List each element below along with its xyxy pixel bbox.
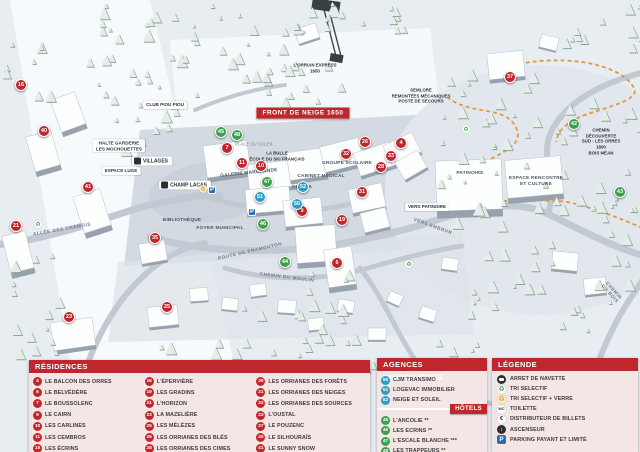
residence-label: LES CEMBROS <box>45 435 86 441</box>
residence-number-badge: 11 <box>33 433 42 442</box>
map-marker-21[interactable]: 21 <box>10 220 22 232</box>
hotel-label: LES ECRINS ** <box>393 428 432 434</box>
agency-label: NEIGE ET SOLEIL <box>393 397 441 403</box>
residence-item: 7LE BOUSSOLENC <box>33 398 145 409</box>
residences-panel-title: RÉSIDENCES <box>29 360 370 373</box>
hotel-number-badge: 47 <box>381 437 390 446</box>
legend-label: ARRET DE NAVETTE <box>510 376 565 382</box>
residence-label: LE BELVÉDÈRE <box>45 390 87 396</box>
map-marker-48[interactable]: 48 <box>231 129 243 141</box>
residence-label: L'ÉPERVIÈRE <box>157 379 193 385</box>
legend-panel: LÉGENDE ARRET DE NAVETTE♻TRI SELECTIF♻TR… <box>492 358 638 452</box>
residence-label: LES ORRIANES DES NEIGES <box>268 390 345 396</box>
residence-label: LE POUZENC <box>268 423 304 429</box>
map-marker-10[interactable]: 10 <box>255 160 267 172</box>
residence-number-badge: 4 <box>33 377 42 386</box>
legend-label: PARKING PAYANT ET LIMITÉ <box>510 437 587 443</box>
hotel-label: LES TRAPPEURS ** <box>393 448 446 452</box>
hotel-label: L'ANCOLIE ** <box>393 418 429 424</box>
residence-item: 19LES GRADINS <box>145 387 257 398</box>
map-marker-37[interactable]: 37 <box>504 71 516 83</box>
residence-number-badge: 21 <box>145 399 154 408</box>
residence-number-badge: 30 <box>256 377 265 386</box>
legend-item: WCTOILETTE <box>497 404 635 414</box>
agencies-panel-title: AGENCES IMMOBILIÈRES <box>377 358 487 371</box>
map-marker-25[interactable]: 25 <box>161 301 173 313</box>
legend-item: €DISTRIBUTEUR DE BILLETS <box>497 414 635 424</box>
residence-item: 21L'HORIZON <box>145 398 257 409</box>
residence-label: LES ÉCRINS <box>45 446 78 452</box>
legend-label: ASCENSEUR <box>510 427 545 433</box>
map-marker-11[interactable]: 11 <box>236 157 248 169</box>
legend-item: ARRET DE NAVETTE <box>497 374 635 384</box>
residence-number-badge: 19 <box>145 388 154 397</box>
map-marker-50[interactable]: 50 <box>291 198 303 210</box>
residence-item: 31LES ORRIANES DES NEIGES <box>256 387 368 398</box>
map-marker-52[interactable]: 52 <box>297 181 309 193</box>
recycle-yellow-icon: ♻ <box>497 395 506 404</box>
residences-column-3: 30LES ORRIANES DES FORÊTS31LES ORRIANES … <box>256 376 368 452</box>
map-marker-42[interactable]: 42 <box>568 118 580 130</box>
legend-item: ♻TRI SELECTIF + VERRE <box>497 394 635 404</box>
residence-item: 40LE SILHOURAÏS <box>256 432 368 443</box>
residence-number-badge: 41 <box>256 444 265 452</box>
recycle-icon: ♻ <box>462 125 470 133</box>
hotel-number-badge: 48 <box>381 447 390 452</box>
agencies-panel: AGENCES IMMOBILIÈRES 50CJM TRANSIMO51LOG… <box>377 358 487 452</box>
map-marker-31[interactable]: 31 <box>356 186 368 198</box>
residence-item: 15LES ÉCRINS <box>33 443 145 452</box>
residence-item: 16L'ÉPERVIÈRE <box>145 376 257 387</box>
euro-icon: € <box>497 415 506 424</box>
residence-label: LES ORRIANES DES SOURCES <box>268 401 352 407</box>
agencies-list: 50CJM TRANSIMO51LOGEVAC IMMOBILIER52NEIG… <box>377 371 487 406</box>
legend-label: TOILETTE <box>510 406 537 412</box>
legend-item: PPARKING PAYANT ET LIMITÉ <box>497 435 635 445</box>
residence-item: 26LES ORRIANES DES BLÉS <box>145 432 257 443</box>
residence-label: LES MÉLÈZES <box>157 423 196 429</box>
bus-icon <box>497 375 506 384</box>
hotels-divider: HÔTELS <box>377 408 487 410</box>
residence-label: LES ORRIANES DES CIMES <box>157 446 231 452</box>
map-marker-19[interactable]: 19 <box>336 214 348 226</box>
residence-number-badge: 31 <box>256 388 265 397</box>
hotel-label: L'ESCALE BLANCHE *** <box>393 438 457 444</box>
recycle-green-icon: ♻ <box>497 385 506 394</box>
residence-number-badge: 26 <box>145 433 154 442</box>
residence-number-badge: 23 <box>145 411 154 420</box>
hotels-panel-title: HÔTELS <box>450 404 487 414</box>
residence-label: L'HORIZON <box>157 401 187 407</box>
residence-label: LE SILHOURAÏS <box>268 435 311 441</box>
hotels-list: 45L'ANCOLIE **46LES ECRINS **47L'ESCALE … <box>377 410 487 452</box>
map-marker-41[interactable]: 41 <box>82 181 94 193</box>
resort-map-page: FRONT DE NEIGE 1650L'ORRIAN EXPRESS 1650… <box>0 0 640 452</box>
residence-label: L'OUSTAL <box>268 412 295 418</box>
residence-item: 10LES CARLINES <box>33 421 145 432</box>
residence-item: 37LE POUZENC <box>256 421 368 432</box>
legend-list: ARRET DE NAVETTE♻TRI SELECTIF♻TRI SELECT… <box>492 371 638 445</box>
residence-number-badge: 16 <box>145 377 154 386</box>
map-marker-32[interactable]: 32 <box>340 148 352 160</box>
residence-label: LES GRADINS <box>157 390 195 396</box>
legend-item: ♻TRI SELECTIF <box>497 384 635 394</box>
residence-item: 33L'OUSTAL <box>256 410 368 421</box>
map-marker-51[interactable]: 51 <box>254 191 266 203</box>
residence-number-badge: 40 <box>256 433 265 442</box>
agency-number-badge: 51 <box>381 386 390 395</box>
elevator-icon: ↕ <box>497 425 506 434</box>
map-marker-26[interactable]: 26 <box>359 136 371 148</box>
map-marker-4[interactable]: 4 <box>395 137 407 149</box>
residence-item: 11LES CEMBROS <box>33 432 145 443</box>
hotel-item: 47L'ESCALE BLANCHE *** <box>381 436 484 446</box>
map-marker-28[interactable]: 28 <box>375 161 387 173</box>
agency-number-badge: 52 <box>381 396 390 405</box>
residence-number-badge: 32 <box>256 399 265 408</box>
legend-label: TRI SELECTIF <box>510 386 547 392</box>
agency-label: CJM TRANSIMO <box>393 377 436 383</box>
map-marker-6[interactable]: 6 <box>331 257 343 269</box>
residence-item: 23LA MAZELIÈRE <box>145 410 257 421</box>
legend-item: ↕ASCENSEUR <box>497 424 635 434</box>
residence-item: 32LES ORRIANES DES SOURCES <box>256 398 368 409</box>
map-marker-33[interactable]: 33 <box>385 150 397 162</box>
residence-number-badge: 25 <box>145 422 154 431</box>
map-marker-40[interactable]: 40 <box>38 125 50 137</box>
hotel-item: 46LES ECRINS ** <box>381 426 484 436</box>
map-marker-23[interactable]: 23 <box>63 311 75 323</box>
residence-number-badge: 6 <box>33 388 42 397</box>
residence-label: LES ORRIANES DES BLÉS <box>157 435 228 441</box>
residence-label: LES CARLINES <box>45 423 86 429</box>
map-marker-7[interactable]: 7 <box>221 142 233 154</box>
residence-number-badge: 9 <box>33 411 42 420</box>
residence-item: 25LES MÉLÈZES <box>145 421 257 432</box>
residence-number-badge: 33 <box>256 411 265 420</box>
legend-label: DISTRIBUTEUR DE BILLETS <box>510 416 585 422</box>
wc-icon: WC <box>497 405 506 414</box>
residence-number-badge: 37 <box>256 422 265 431</box>
agency-number-badge: 50 <box>381 376 390 385</box>
residence-item: 6LE BELVÉDÈRE <box>33 387 145 398</box>
residence-label: LE CAIRN <box>45 412 71 418</box>
residence-number-badge: 28 <box>145 444 154 452</box>
residence-label: LE BOUSSOLENC <box>45 401 93 407</box>
residences-column-1: 4LE BALCON DES ORRES6LE BELVÉDÈRE7LE BOU… <box>33 376 145 452</box>
hotel-number-badge: 46 <box>381 426 390 435</box>
agency-label: LOGEVAC IMMOBILIER <box>393 387 455 393</box>
map-marker-45[interactable]: 45 <box>215 126 227 138</box>
residence-item: 28LES ORRIANES DES CIMES <box>145 443 257 452</box>
map-marker-44[interactable]: 44 <box>279 256 291 268</box>
map-marker-46[interactable]: 46 <box>257 218 269 230</box>
recycle-icon: ♻ <box>405 260 413 268</box>
legend-panel-title: LÉGENDE <box>492 358 638 371</box>
residence-label: LES ORRIANES DES FORÊTS <box>268 379 347 385</box>
residence-number-badge: 7 <box>33 399 42 408</box>
hotel-item: 45L'ANCOLIE ** <box>381 416 484 426</box>
map-marker-47[interactable]: 47 <box>261 176 273 188</box>
residence-item: 9LE CAIRN <box>33 410 145 421</box>
recycle-y-icon: ♻ <box>199 185 207 193</box>
agency-item: 51LOGEVAC IMMOBILIER <box>381 385 484 395</box>
parking-icon: P <box>208 186 216 194</box>
residence-label: LE BALCON DES ORRES <box>45 379 112 385</box>
residences-panel: RÉSIDENCES 4LE BALCON DES ORRES6LE BELVÉ… <box>29 360 370 452</box>
residence-number-badge: 15 <box>33 444 42 452</box>
recycle-icon: ♻ <box>34 220 42 228</box>
residences-list: 4LE BALCON DES ORRES6LE BELVÉDÈRE7LE BOU… <box>29 373 370 452</box>
hotel-number-badge: 45 <box>381 416 390 425</box>
parking-icon: P <box>248 208 256 216</box>
map-marker-35[interactable]: 35 <box>149 232 161 244</box>
residence-item: 4LE BALCON DES ORRES <box>33 376 145 387</box>
map-marker-43[interactable]: 43 <box>614 186 626 198</box>
residence-item: 30LES ORRIANES DES FORÊTS <box>256 376 368 387</box>
parking-icon: P <box>497 435 506 444</box>
residence-number-badge: 10 <box>33 422 42 431</box>
residence-label: LE SUNNY SNOW <box>268 446 315 452</box>
residences-column-2: 16L'ÉPERVIÈRE19LES GRADINS21L'HORIZON23L… <box>145 376 257 452</box>
hotel-item: 48LES TRAPPEURS ** <box>381 446 484 452</box>
legend-label: TRI SELECTIF + VERRE <box>510 396 573 402</box>
residence-item: 41LE SUNNY SNOW <box>256 443 368 452</box>
residence-label: LA MAZELIÈRE <box>157 412 198 418</box>
map-marker-16[interactable]: 16 <box>15 79 27 91</box>
